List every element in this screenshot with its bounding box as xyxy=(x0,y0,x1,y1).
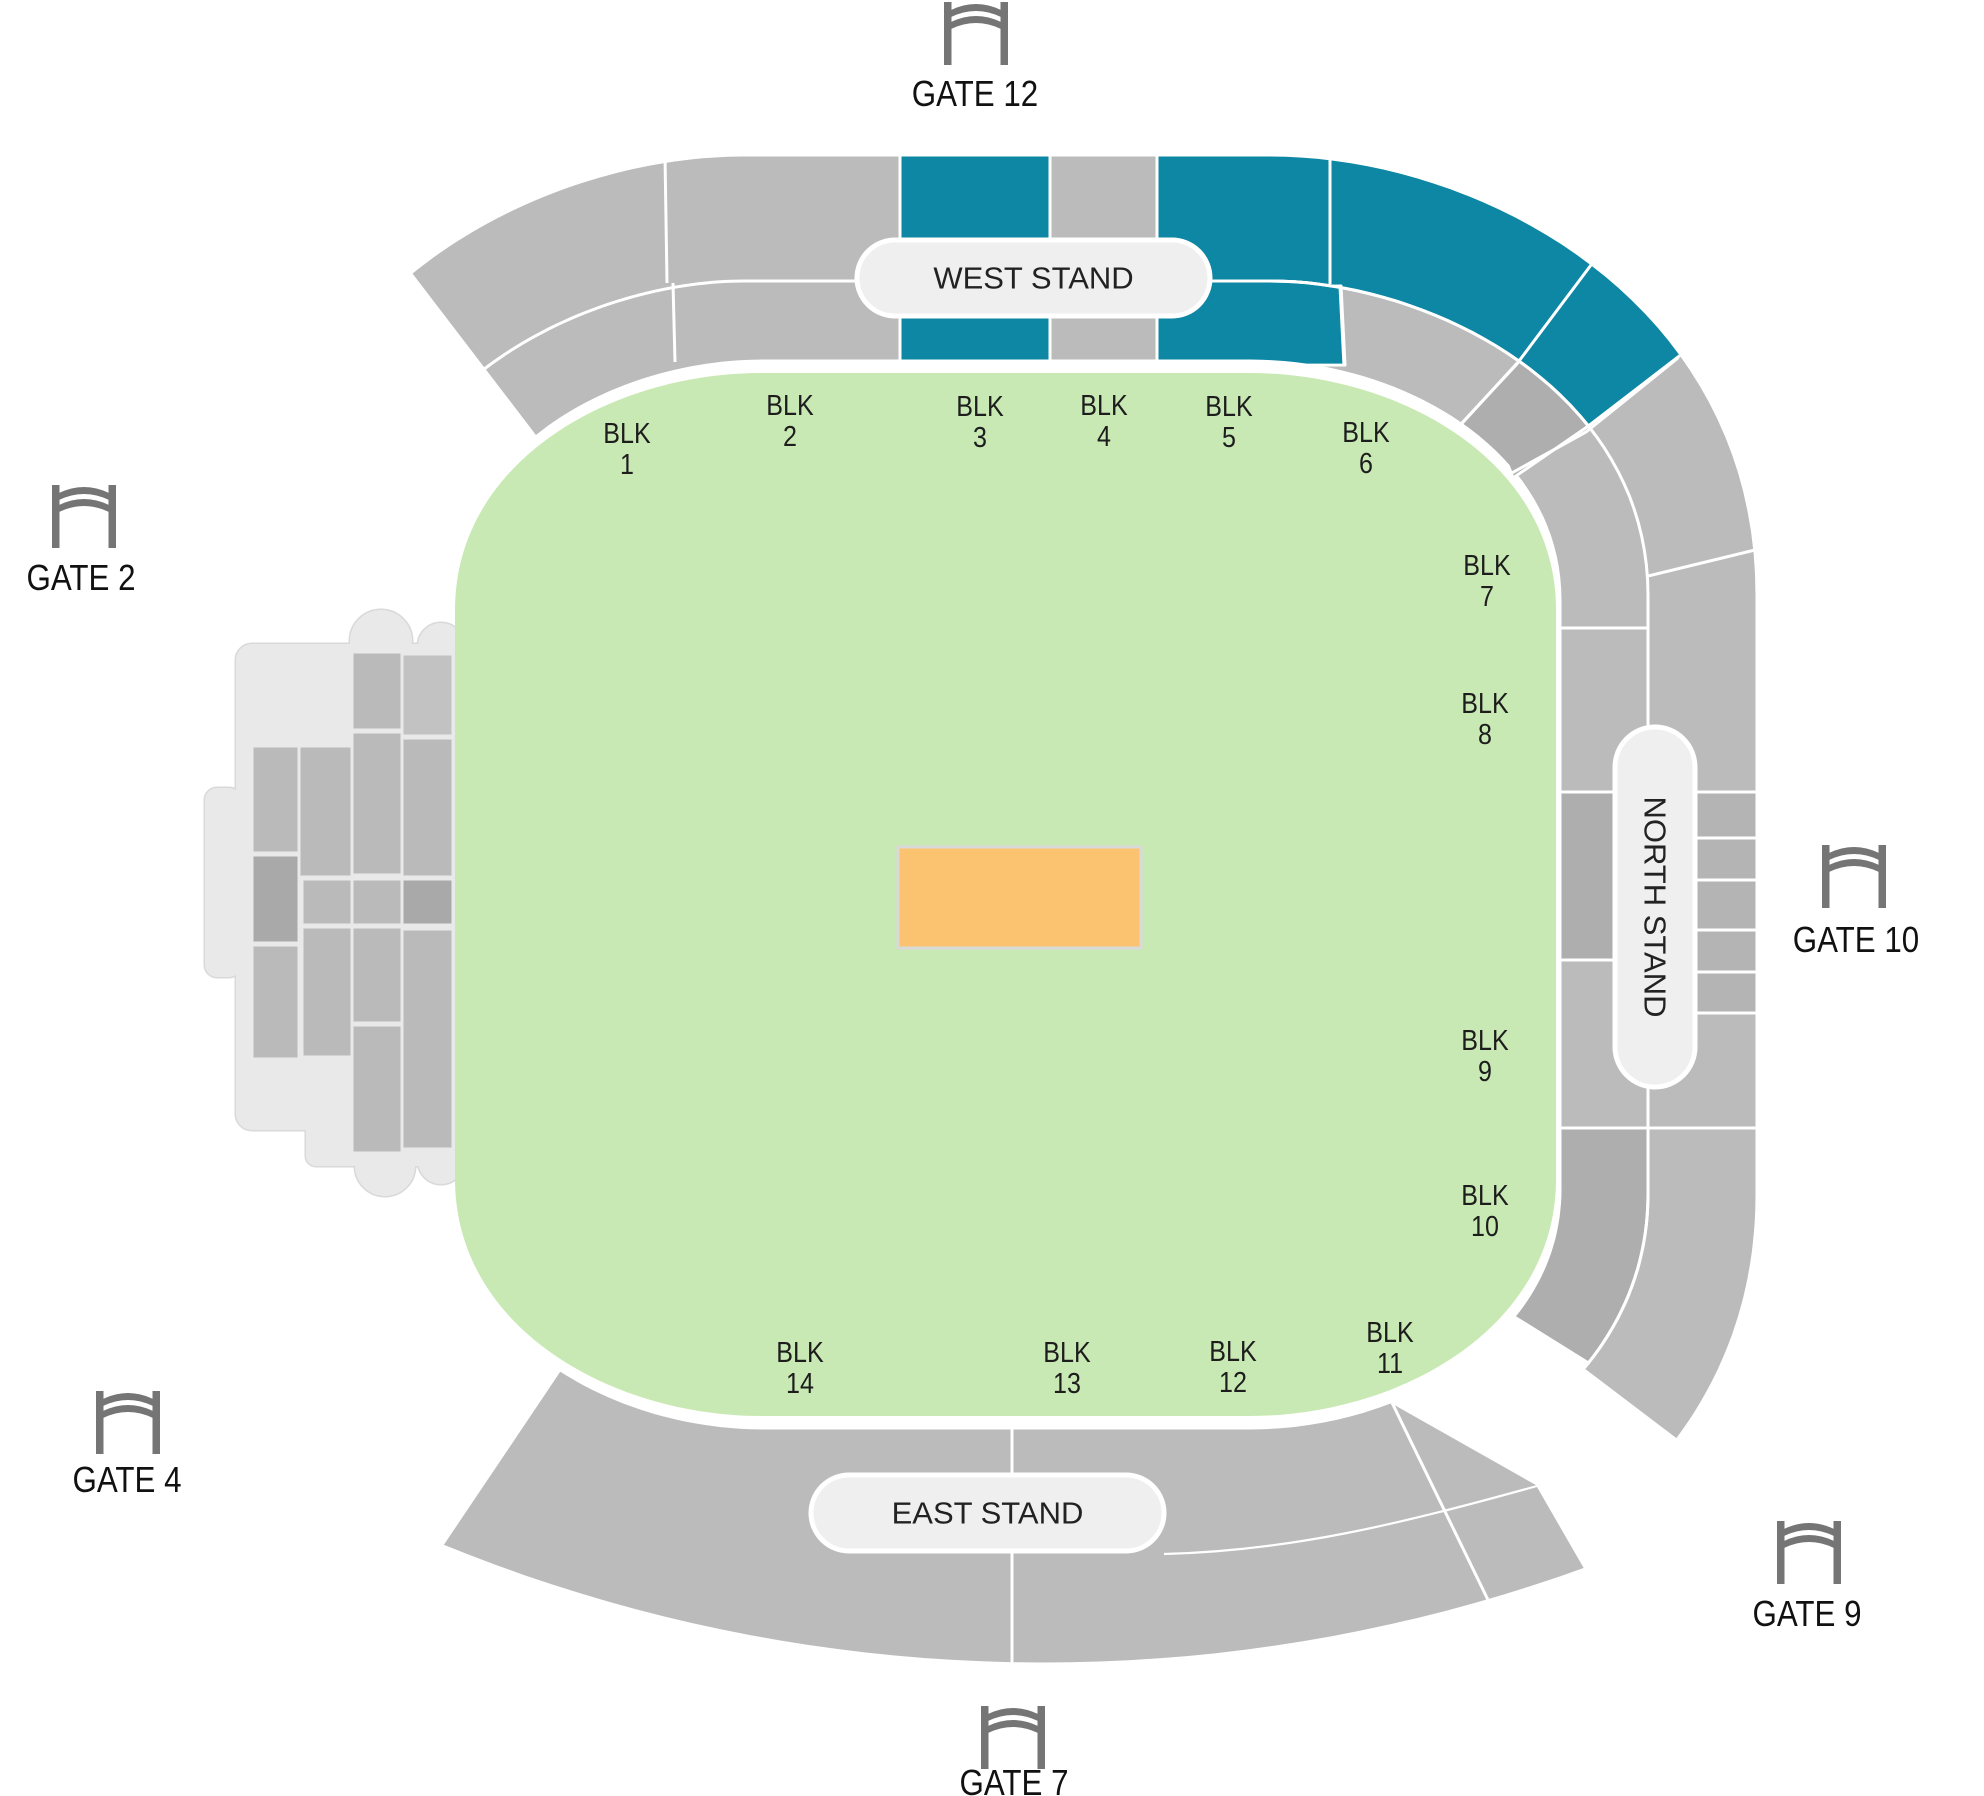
svg-text:5: 5 xyxy=(1222,422,1236,454)
svg-text:GATE 9: GATE 9 xyxy=(1752,1594,1861,1635)
svg-text:BLK: BLK xyxy=(956,391,1003,423)
svg-text:GATE 7: GATE 7 xyxy=(959,1763,1068,1796)
svg-text:10: 10 xyxy=(1471,1211,1499,1243)
svg-text:4: 4 xyxy=(1097,421,1111,453)
svg-text:WEST STAND: WEST STAND xyxy=(933,261,1133,296)
svg-text:BLK: BLK xyxy=(1463,550,1510,582)
svg-text:BLK: BLK xyxy=(1209,1336,1256,1368)
svg-text:13: 13 xyxy=(1053,1368,1081,1400)
svg-text:11: 11 xyxy=(1377,1348,1403,1380)
svg-text:EAST STAND: EAST STAND xyxy=(892,1496,1084,1531)
svg-text:1: 1 xyxy=(620,449,634,481)
svg-text:9: 9 xyxy=(1478,1056,1492,1088)
svg-text:BLK: BLK xyxy=(776,1337,823,1369)
svg-text:BLK: BLK xyxy=(1461,1025,1508,1057)
svg-text:6: 6 xyxy=(1359,448,1373,480)
svg-text:GATE 2: GATE 2 xyxy=(26,558,135,599)
svg-text:BLK: BLK xyxy=(1342,417,1389,449)
svg-text:BLK: BLK xyxy=(1080,390,1127,422)
svg-text:BLK: BLK xyxy=(1205,391,1252,423)
svg-text:3: 3 xyxy=(973,422,987,454)
svg-text:BLK: BLK xyxy=(1043,1337,1090,1369)
svg-text:BLK: BLK xyxy=(1366,1317,1413,1349)
svg-text:8: 8 xyxy=(1478,719,1492,751)
svg-text:BLK: BLK xyxy=(1461,688,1508,720)
svg-text:12: 12 xyxy=(1219,1367,1247,1399)
svg-text:GATE 12: GATE 12 xyxy=(912,74,1038,115)
svg-text:14: 14 xyxy=(786,1368,814,1400)
svg-text:BLK: BLK xyxy=(766,390,813,422)
svg-text:GATE 10: GATE 10 xyxy=(1793,920,1919,961)
svg-text:7: 7 xyxy=(1480,581,1494,613)
svg-text:GATE 4: GATE 4 xyxy=(72,1460,181,1501)
svg-text:NORTH STAND: NORTH STAND xyxy=(1638,796,1673,1017)
svg-text:BLK: BLK xyxy=(603,418,650,450)
svg-text:2: 2 xyxy=(783,421,797,453)
svg-text:BLK: BLK xyxy=(1461,1180,1508,1212)
